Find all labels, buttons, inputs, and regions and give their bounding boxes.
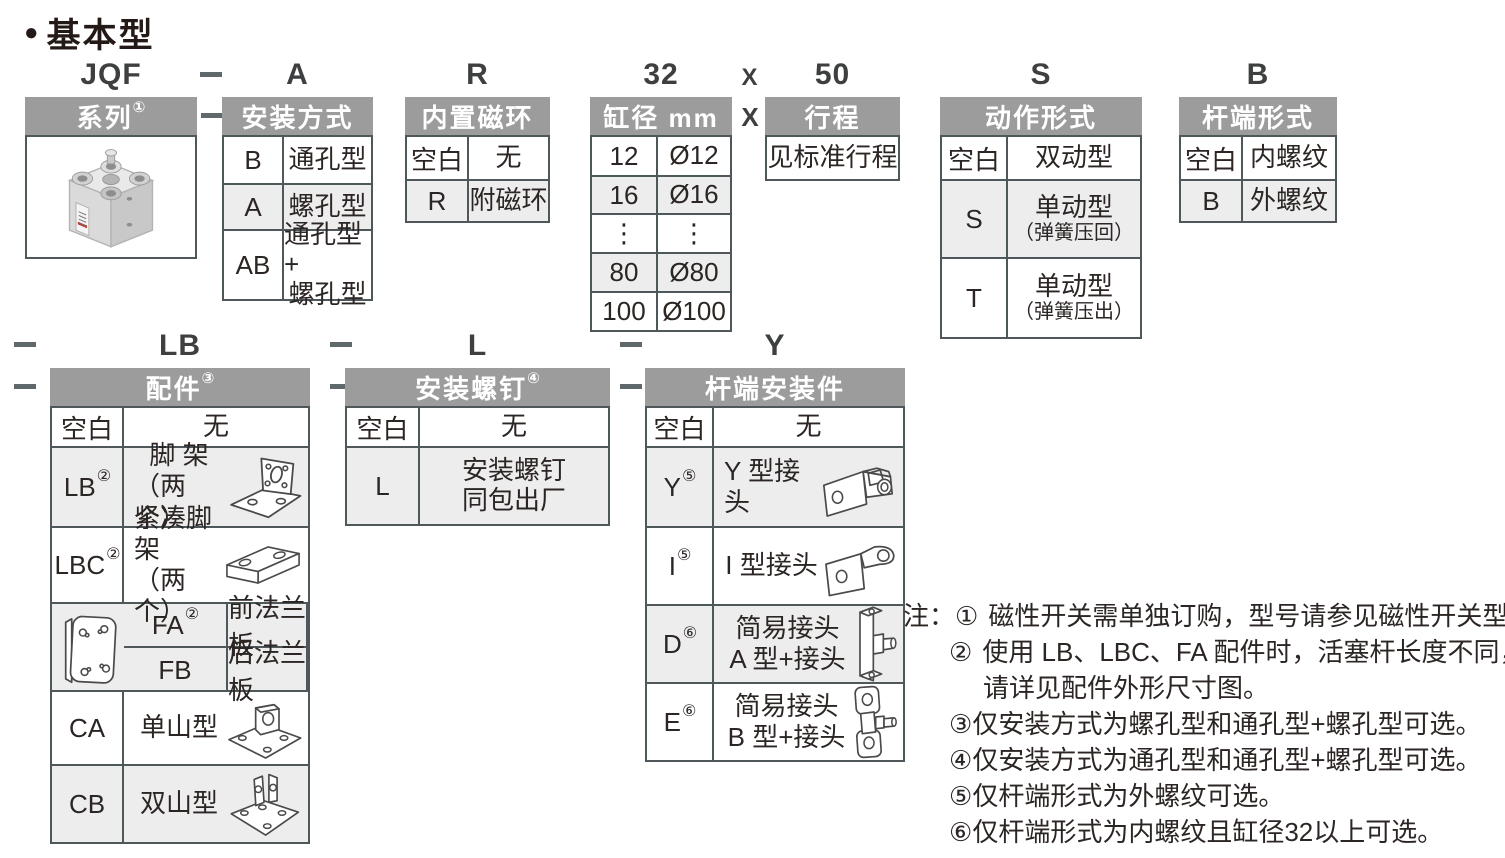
- table-row: FA② 前法兰板 FB 后法兰板: [52, 602, 308, 690]
- dash-icon: [14, 342, 36, 347]
- notes: 注： ① 磁性开关需单独订购，型号请参见磁性开关型号表。 ② 使用 LB、LBC…: [903, 598, 1503, 850]
- bore-table: 缸径 mm 12Ø12 16Ø16 ⋮⋮ 80Ø80 100Ø100: [590, 97, 732, 332]
- compact-foot-bracket-icon: [222, 540, 304, 590]
- table-row: E⑥ 简易接头B 型+接头: [647, 682, 903, 760]
- series-table: 系列①: [25, 97, 197, 259]
- note-line: ⑥ 仅杆端形式为内螺纹且缸径32以上可选。: [903, 814, 1503, 850]
- table-row: 空白 无: [347, 408, 608, 446]
- note-line: ② 使用 LB、LBC、FA 配件时，活塞杆长度不同，: [903, 634, 1503, 670]
- table-row: 空白 无: [647, 408, 903, 446]
- table-row: I⑤ I 型接头: [647, 526, 903, 604]
- note-line: ④ 仅安装方式为通孔型和通孔型+螺孔型可选。: [903, 742, 1503, 778]
- accessory-table: 配件③ 空白 无 LB② 脚 架（两 个）: [50, 368, 310, 844]
- flange-plate-icon: [52, 604, 124, 692]
- rod-end-table: 杆端形式 空白 内螺纹 B 外螺纹: [1179, 97, 1337, 223]
- code-stroke: 50: [765, 57, 900, 93]
- code-mounting: A: [222, 57, 373, 93]
- table-row: D⑥ 简易接头A 型+接头: [647, 604, 903, 682]
- magnet-header: 内置磁环: [405, 97, 550, 135]
- code-rod-mount: Y: [645, 328, 905, 364]
- compact-cylinder-photo: [35, 138, 187, 256]
- table-row: 见标准行程: [767, 137, 898, 179]
- series-header: 系列①: [25, 97, 197, 135]
- table-row: ⋮⋮: [592, 213, 730, 252]
- table-row: B 外螺纹: [1181, 179, 1335, 221]
- dash-icon: [620, 342, 642, 347]
- table-row: 空白 双动型: [942, 137, 1140, 179]
- dash-icon: [14, 384, 36, 389]
- table-row: 16Ø16: [592, 175, 730, 213]
- note-line: ⑤ 仅杆端形式为外螺纹可选。: [903, 778, 1503, 814]
- circled-4-icon: ④: [949, 742, 972, 778]
- note-line: ③ 仅安装方式为螺孔型和通孔型+螺孔型可选。: [903, 706, 1503, 742]
- table-row: CB 双山型: [52, 764, 308, 842]
- circled-2-icon: ②: [949, 634, 972, 670]
- mounting-screws-table: 安装螺钉④ 空白 无 L 安装螺钉同包出厂: [345, 368, 610, 526]
- i-knuckle-icon: [819, 534, 899, 598]
- code-screws: L: [345, 328, 610, 364]
- code-rod-end: B: [1179, 57, 1337, 93]
- dash-icon: [620, 384, 642, 389]
- note-line: 请详见配件外形尺寸图。: [903, 670, 1503, 706]
- table-row: R 附磁环: [407, 179, 548, 221]
- note-line: 注： ① 磁性开关需单独订购，型号请参见磁性开关型号表。: [903, 598, 1503, 634]
- mounting-table: 安装方式 B 通孔型 A 螺孔型 AB 通孔型+螺孔型: [222, 97, 373, 301]
- code-bore: 32: [590, 57, 732, 93]
- code-series: JQF: [25, 57, 197, 93]
- single-clevis-icon: [224, 693, 304, 763]
- table-row: 空白 内螺纹: [1181, 137, 1335, 179]
- table-row: 80Ø80: [592, 252, 730, 291]
- stroke-header: 行程: [765, 97, 900, 135]
- mounting-header: 安装方式: [222, 97, 373, 135]
- table-row: 12Ø12: [592, 137, 730, 175]
- table-row: 100Ø100: [592, 291, 730, 330]
- dash-icon: [201, 113, 223, 118]
- table-row: L 安装螺钉同包出厂: [347, 446, 608, 524]
- table-row: S 单动型（弹簧压回）: [942, 179, 1140, 257]
- table-row: B 通孔型: [224, 137, 371, 183]
- foot-bracket-icon: [224, 451, 304, 523]
- code-times: X: [735, 60, 765, 96]
- bore-header: 缸径 mm: [590, 97, 732, 135]
- mounting-screws-header: 安装螺钉④: [345, 368, 610, 406]
- floating-joint-b-icon: [849, 682, 899, 762]
- code-magnet: R: [405, 57, 550, 93]
- dash-icon: [200, 72, 222, 77]
- bullet-icon: ●: [24, 21, 39, 45]
- accessory-header: 配件③: [50, 368, 310, 406]
- table-row: 空白 无: [407, 137, 548, 179]
- magnet-table: 内置磁环 空白 无 R 附磁环: [405, 97, 550, 223]
- series-product-image: [25, 135, 197, 259]
- action-header: 动作形式: [940, 97, 1142, 135]
- stroke-table: 行程 见标准行程: [765, 97, 900, 181]
- rod-mount-header: 杆端安装件: [645, 368, 905, 406]
- table-row: T 单动型（弹簧压出）: [942, 257, 1140, 337]
- table-row: Y⑤ Y 型接头: [647, 446, 903, 526]
- circled-1-icon: ①: [955, 598, 978, 634]
- ordering-code-page: ● 基本型 JQF A R 32 X 50 S B 系列①: [0, 0, 1505, 858]
- y-knuckle-icon: [817, 454, 899, 520]
- rod-end-header: 杆端形式: [1179, 97, 1337, 135]
- table-row: CA 单山型: [52, 690, 308, 764]
- circled-5-icon: ⑤: [949, 778, 972, 814]
- double-clevis-icon: [224, 768, 304, 840]
- times-separator: X: [735, 102, 765, 133]
- code-accessory: LB: [50, 328, 310, 364]
- floating-joint-a-icon: [851, 604, 899, 684]
- circled-3-icon: ③: [949, 706, 972, 742]
- action-table: 动作形式 空白 双动型 S 单动型（弹簧压回） T 单动型（弹簧压出）: [940, 97, 1142, 339]
- rod-mount-table: 杆端安装件 空白 无 Y⑤ Y 型接头: [645, 368, 905, 762]
- page-title-text: 基本型: [47, 8, 155, 57]
- circled-6-icon: ⑥: [949, 814, 972, 850]
- table-row: AB 通孔型+螺孔型: [224, 229, 371, 299]
- page-title: ● 基本型: [24, 8, 155, 57]
- code-action: S: [940, 57, 1142, 93]
